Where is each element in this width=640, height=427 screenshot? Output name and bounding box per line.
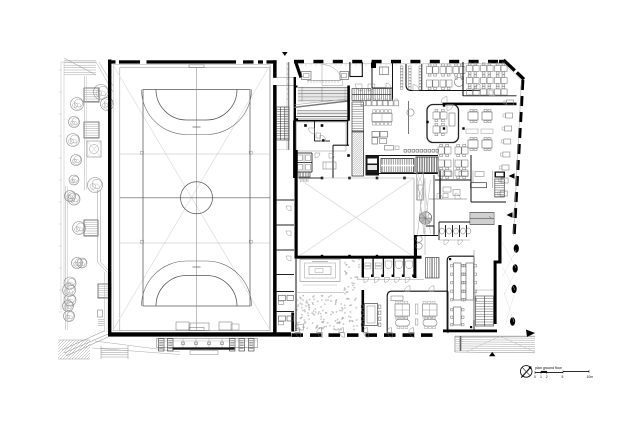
svg-text:10m: 10m — [587, 375, 594, 379]
svg-text:0: 0 — [534, 375, 536, 379]
svg-text:5: 5 — [562, 375, 564, 379]
svg-text:plan ground floor: plan ground floor — [535, 366, 563, 370]
svg-text:2: 2 — [546, 375, 548, 379]
svg-text:1: 1 — [540, 375, 542, 379]
